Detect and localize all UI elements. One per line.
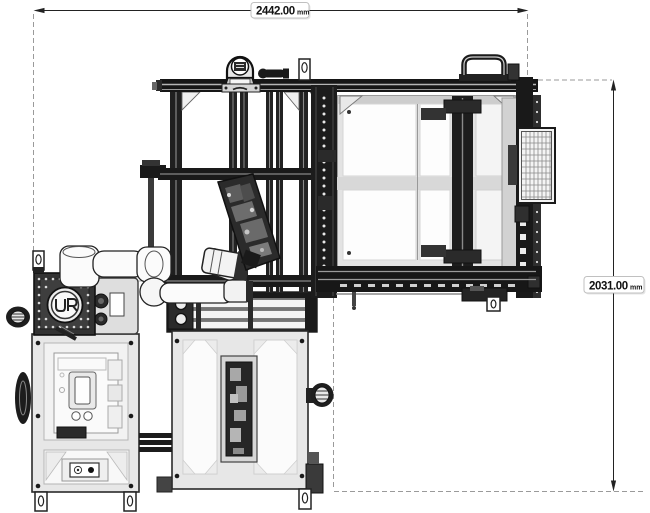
svg-text:2442.00: 2442.00 [256, 6, 295, 18]
svg-text:2031.00: 2031.00 [589, 281, 628, 293]
svg-text:mm: mm [297, 10, 309, 17]
svg-text:mm: mm [630, 285, 642, 292]
